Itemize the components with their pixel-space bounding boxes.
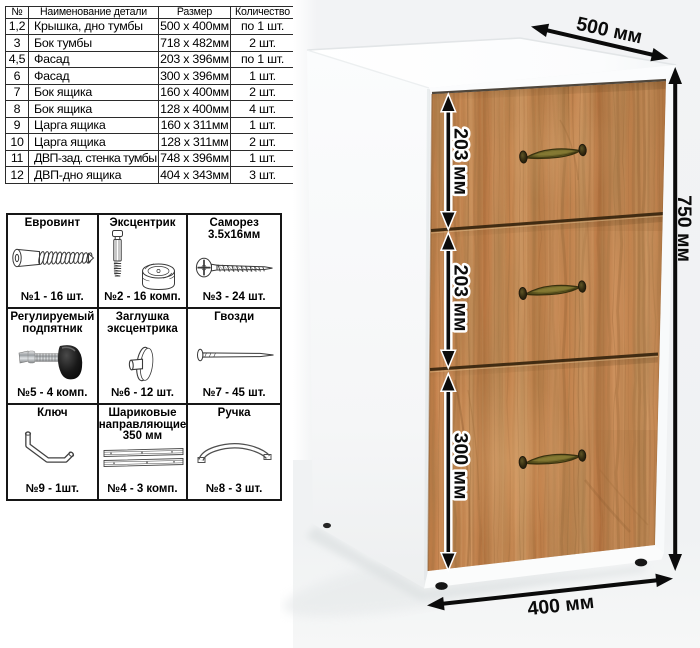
svg-text:203 мм: 203 мм xyxy=(450,128,472,195)
svg-text:750 мм: 750 мм xyxy=(673,195,695,262)
svg-text:300 мм: 300 мм xyxy=(450,433,472,500)
svg-text:203 мм: 203 мм xyxy=(450,265,472,332)
